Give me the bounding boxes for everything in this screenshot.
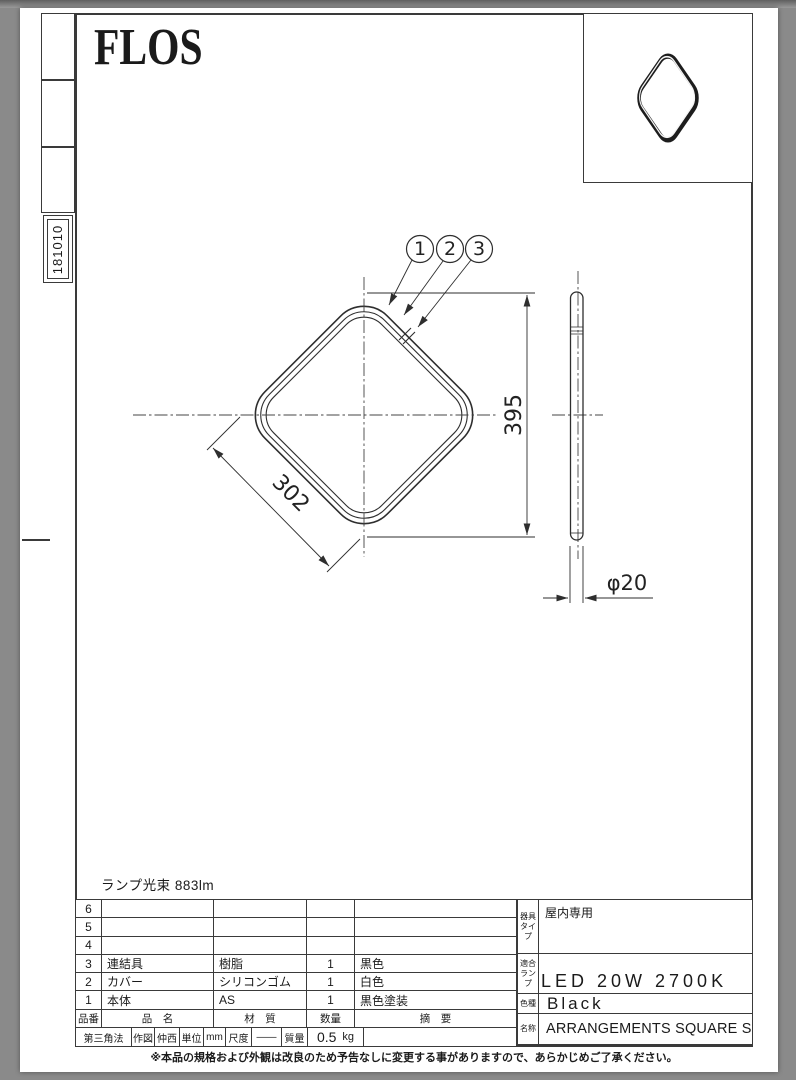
color-value: Black: [539, 994, 752, 1013]
part-qty: 1: [306, 955, 354, 972]
scale-value: ——: [251, 1028, 281, 1046]
drawing-number-box: 181010: [43, 215, 73, 283]
color-label: 色種: [518, 994, 539, 1013]
parts-table: 6 5 4 3 連結具 樹脂 1 黒色 2: [75, 899, 517, 1047]
lamp-row: 適合 ランプ LED 20W 2700K: [518, 954, 752, 994]
revision-cell-3: [41, 147, 75, 213]
part-material: [213, 937, 306, 954]
drafter-name: 仲西: [154, 1028, 179, 1046]
mass-unit: kg: [342, 1031, 354, 1043]
product-name-label: 名称: [518, 1014, 539, 1044]
spec-box: 器具 タイプ 屋内専用 適合 ランプ LED 20W 2700K 色種 Blac…: [517, 899, 753, 1045]
part-no: 4: [76, 937, 101, 954]
part-remark: [354, 900, 516, 917]
lamp-label: 適合 ランプ: [518, 954, 539, 993]
table-row: 2 カバー シリコンゴム 1 白色: [76, 973, 516, 991]
empty-cell: [363, 1028, 516, 1046]
mass-cell: 0.5 kg: [307, 1028, 363, 1046]
drawing-sheet: 181010 FLOS: [0, 0, 796, 1080]
part-qty: 1: [306, 991, 354, 1008]
unit-value: mm: [203, 1028, 225, 1046]
header-remark: 摘 要: [354, 1010, 516, 1027]
scale-label: 尺度: [225, 1028, 251, 1046]
top-shade: [0, 0, 796, 8]
part-name: 連結具: [101, 955, 213, 972]
part-name: [101, 900, 213, 917]
part-no: 3: [76, 955, 101, 972]
preview-ring-outline: [635, 50, 702, 146]
part-qty: [306, 937, 354, 954]
projection-method: 第三角法: [76, 1028, 131, 1046]
table-row: 4: [76, 937, 516, 955]
part-remark: [354, 918, 516, 935]
mass-label: 質量: [281, 1028, 307, 1046]
title-block-row: 第三角法 作図 仲西 単位 mm 尺度 —— 質量 0.5 kg: [76, 1028, 516, 1046]
fixture-type-label: 器具 タイプ: [518, 900, 539, 953]
lamp-value: LED 20W 2700K: [539, 954, 752, 993]
color-row: 色種 Black: [518, 994, 752, 1014]
drafter-label: 作図: [131, 1028, 154, 1046]
part-no: 5: [76, 918, 101, 935]
flos-logo: FLOS: [94, 22, 203, 74]
header-material: 材 質: [213, 1010, 306, 1027]
table-row: 3 連結具 樹脂 1 黒色: [76, 955, 516, 973]
drawing-number: 181010: [51, 224, 66, 273]
part-no: 6: [76, 900, 101, 917]
table-row: 1 本体 AS 1 黒色塗装: [76, 991, 516, 1009]
part-name: [101, 937, 213, 954]
part-name: カバー: [101, 973, 213, 990]
part-remark: 白色: [354, 973, 516, 990]
product-name-row: 名称 ARRANGEMENTS SQUARE SMALL: [518, 1014, 752, 1044]
part-name: 本体: [101, 991, 213, 1008]
header-name: 品 名: [101, 1010, 213, 1027]
lamp-flux-label: ランプ光束 883lm: [101, 874, 214, 894]
fixture-type-value: 屋内専用: [539, 900, 752, 953]
revision-cell-1: [41, 13, 75, 80]
fixture-type-row: 器具 タイプ 屋内専用: [518, 900, 752, 954]
disclaimer-note: ※本品の規格および外観は改良のため予告なしに変更する事がありますので、あらかじめ…: [75, 1049, 753, 1065]
mass-value: 0.5: [317, 1029, 336, 1045]
part-remark: [354, 937, 516, 954]
sheet-center-mark: [22, 539, 50, 541]
product-preview-render: [584, 14, 751, 181]
part-material: AS: [213, 991, 306, 1008]
parts-header-row: 品番 品 名 材 質 数量 摘 要: [76, 1010, 516, 1028]
part-material: [213, 900, 306, 917]
product-name-value: ARRANGEMENTS SQUARE SMALL: [539, 1014, 752, 1044]
preview-ring-highlight: [635, 51, 698, 144]
table-row: 5: [76, 918, 516, 936]
header-no: 品番: [76, 1010, 101, 1027]
product-preview-box: [583, 13, 753, 183]
table-row: 6: [76, 900, 516, 918]
part-name: [101, 918, 213, 935]
drawing-number-inner-box: 181010: [47, 219, 69, 279]
part-remark: 黒色塗装: [354, 991, 516, 1008]
part-material: 樹脂: [213, 955, 306, 972]
part-no: 1: [76, 991, 101, 1008]
part-qty: 1: [306, 973, 354, 990]
part-material: [213, 918, 306, 935]
unit-label: 単位: [179, 1028, 203, 1046]
part-material: シリコンゴム: [213, 973, 306, 990]
header-qty: 数量: [306, 1010, 354, 1027]
part-no: 2: [76, 973, 101, 990]
part-qty: [306, 918, 354, 935]
part-remark: 黒色: [354, 955, 516, 972]
part-qty: [306, 900, 354, 917]
revision-cell-2: [41, 80, 75, 147]
